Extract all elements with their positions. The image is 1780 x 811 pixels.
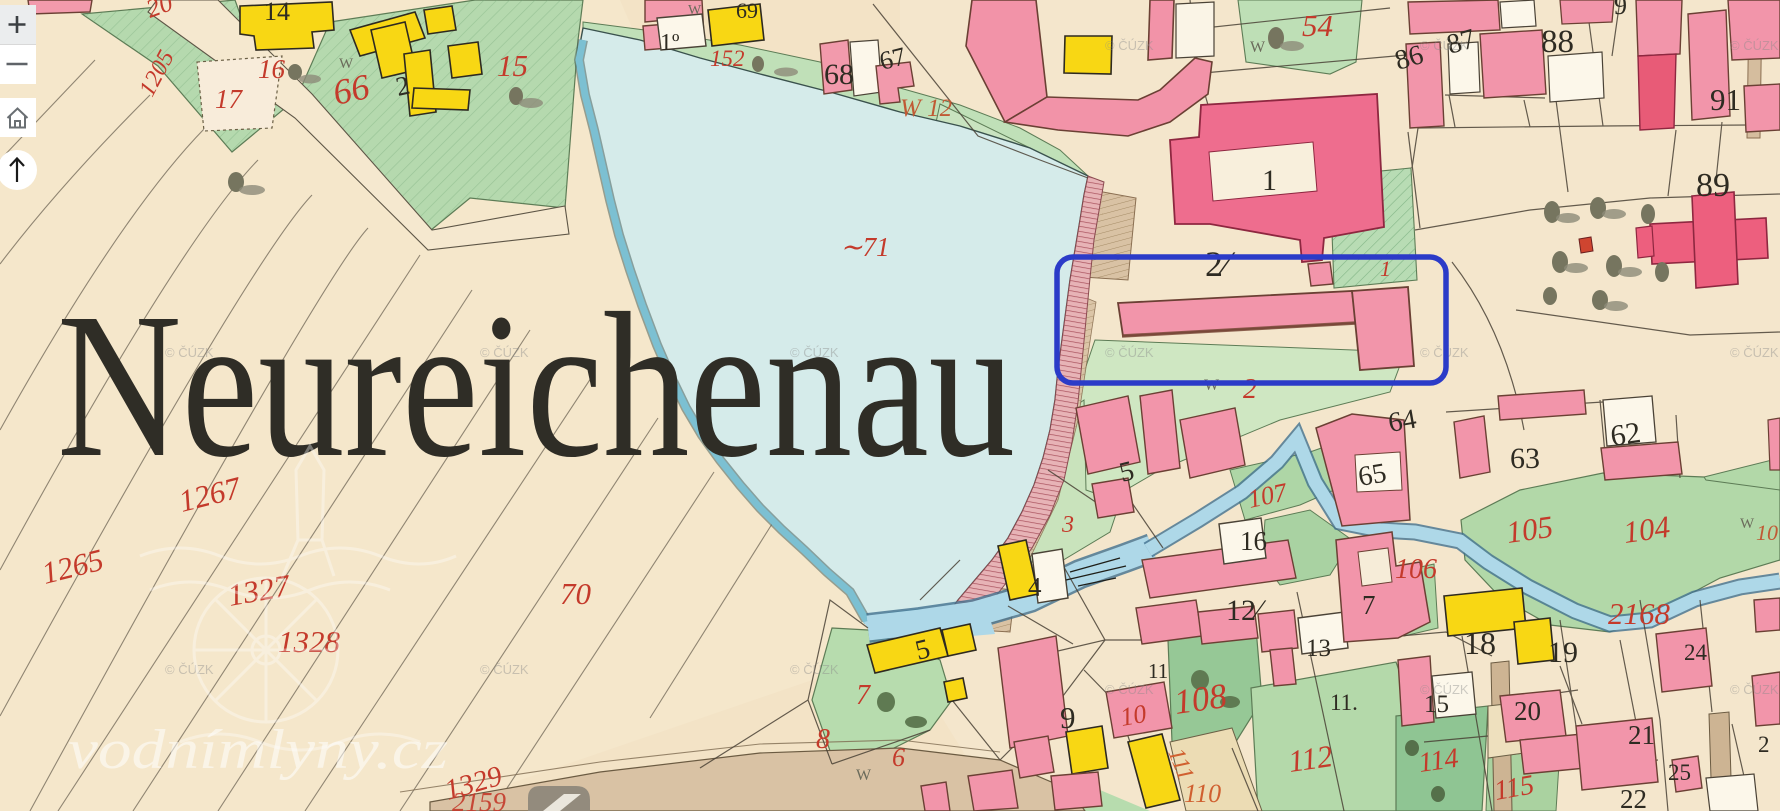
svg-text:© ČÚZK: © ČÚZK: [480, 662, 529, 677]
svg-text:W: W: [1740, 516, 1755, 532]
svg-text:88: 88: [1541, 24, 1574, 60]
svg-text:∼71: ∼71: [840, 232, 890, 262]
svg-text:7: 7: [1362, 590, 1376, 620]
svg-text:62: 62: [1608, 416, 1642, 453]
svg-text:152: 152: [710, 46, 745, 71]
svg-text:114: 114: [1417, 743, 1461, 779]
svg-text:25: 25: [1668, 760, 1691, 785]
svg-text:17: 17: [215, 84, 244, 114]
svg-text:104: 104: [1621, 509, 1672, 550]
svg-text:8: 8: [816, 724, 830, 755]
svg-text:13: 13: [1306, 635, 1331, 662]
svg-text:3: 3: [1061, 512, 1074, 538]
svg-text:14: 14: [264, 0, 290, 26]
svg-text:10: 10: [1118, 699, 1149, 732]
svg-text:24: 24: [1684, 640, 1708, 665]
svg-text:15: 15: [497, 48, 528, 83]
svg-text:© ČÚZK: © ČÚZK: [1105, 345, 1154, 360]
svg-text:12∕: 12∕: [1226, 594, 1267, 627]
svg-text:vodnímlyny.cz: vodnímlyny.cz: [68, 719, 448, 781]
svg-text:108: 108: [1172, 676, 1230, 722]
svg-text:106: 106: [1395, 554, 1437, 585]
svg-text:69: 69: [736, 0, 758, 23]
svg-text:105: 105: [1504, 509, 1555, 550]
svg-text:110: 110: [1184, 779, 1221, 808]
svg-text:22: 22: [1620, 784, 1647, 811]
svg-text:9: 9: [1060, 700, 1076, 735]
svg-text:20: 20: [1514, 696, 1541, 726]
svg-text:© ČÚZK: © ČÚZK: [1420, 682, 1469, 697]
svg-text:6: 6: [892, 743, 905, 772]
svg-text:W 12: W 12: [900, 95, 952, 122]
svg-text:© ČÚZK: © ČÚZK: [165, 662, 214, 677]
svg-text:© ČÚZK: © ČÚZK: [1420, 38, 1469, 53]
svg-text:10: 10: [1756, 520, 1778, 545]
svg-text:21: 21: [1628, 720, 1655, 750]
svg-text:© ČÚZK: © ČÚZK: [1730, 38, 1779, 53]
svg-text:70: 70: [560, 576, 592, 611]
svg-text:19: 19: [1548, 636, 1578, 669]
svg-text:64: 64: [1386, 404, 1419, 439]
svg-text:W: W: [688, 3, 702, 18]
svg-text:68: 68: [824, 58, 854, 91]
svg-text:W: W: [856, 767, 872, 784]
svg-text:Neureichenau: Neureichenau: [57, 269, 1015, 500]
svg-text:11.: 11.: [1330, 690, 1358, 715]
svg-text:© ČÚZK: © ČÚZK: [790, 662, 839, 677]
svg-text:© ČÚZK: © ČÚZK: [1730, 345, 1779, 360]
svg-text:2: 2: [1758, 732, 1770, 757]
svg-text:18: 18: [1464, 625, 1496, 661]
svg-text:W: W: [339, 56, 354, 72]
svg-text:91: 91: [1710, 82, 1741, 117]
svg-text:63: 63: [1510, 442, 1540, 475]
svg-text:2168: 2168: [1608, 596, 1671, 631]
svg-text:65: 65: [1356, 458, 1389, 493]
svg-text:4: 4: [1028, 572, 1042, 602]
svg-text:89: 89: [1696, 167, 1730, 204]
svg-text:© ČÚZK: © ČÚZK: [1105, 682, 1154, 697]
svg-text:7: 7: [856, 680, 871, 711]
svg-text:© ČÚZK: © ČÚZK: [1105, 38, 1154, 53]
svg-text:2159: 2159: [452, 787, 507, 811]
svg-text:9: 9: [1614, 0, 1627, 20]
svg-text:54: 54: [1302, 8, 1333, 43]
svg-text:W: W: [1250, 39, 1266, 56]
svg-text:16: 16: [1240, 526, 1267, 556]
svg-text:2: 2: [1243, 374, 1257, 405]
svg-text:11: 11: [1148, 659, 1168, 683]
svg-text:© ČÚZK: © ČÚZK: [790, 345, 839, 360]
svg-text:1º: 1º: [660, 30, 680, 56]
svg-text:16: 16: [258, 54, 286, 84]
svg-text:1: 1: [1262, 164, 1277, 197]
svg-text:© ČÚZK: © ČÚZK: [165, 345, 214, 360]
svg-text:© ČÚZK: © ČÚZK: [1730, 682, 1779, 697]
svg-text:© ČÚZK: © ČÚZK: [480, 345, 529, 360]
svg-text:112: 112: [1286, 738, 1335, 779]
